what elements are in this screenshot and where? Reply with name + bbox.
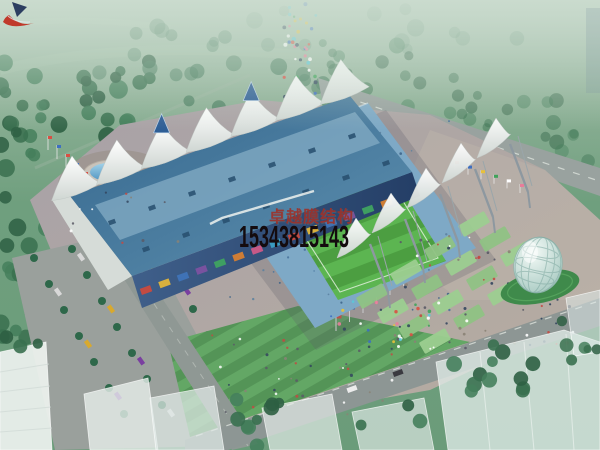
distant-structure-haze	[586, 8, 600, 93]
stadium-aerial-rendering: 卓越膜结构 15343815143	[0, 0, 600, 450]
rendering-scene	[0, 0, 600, 450]
atmospheric-haze	[0, 0, 600, 130]
